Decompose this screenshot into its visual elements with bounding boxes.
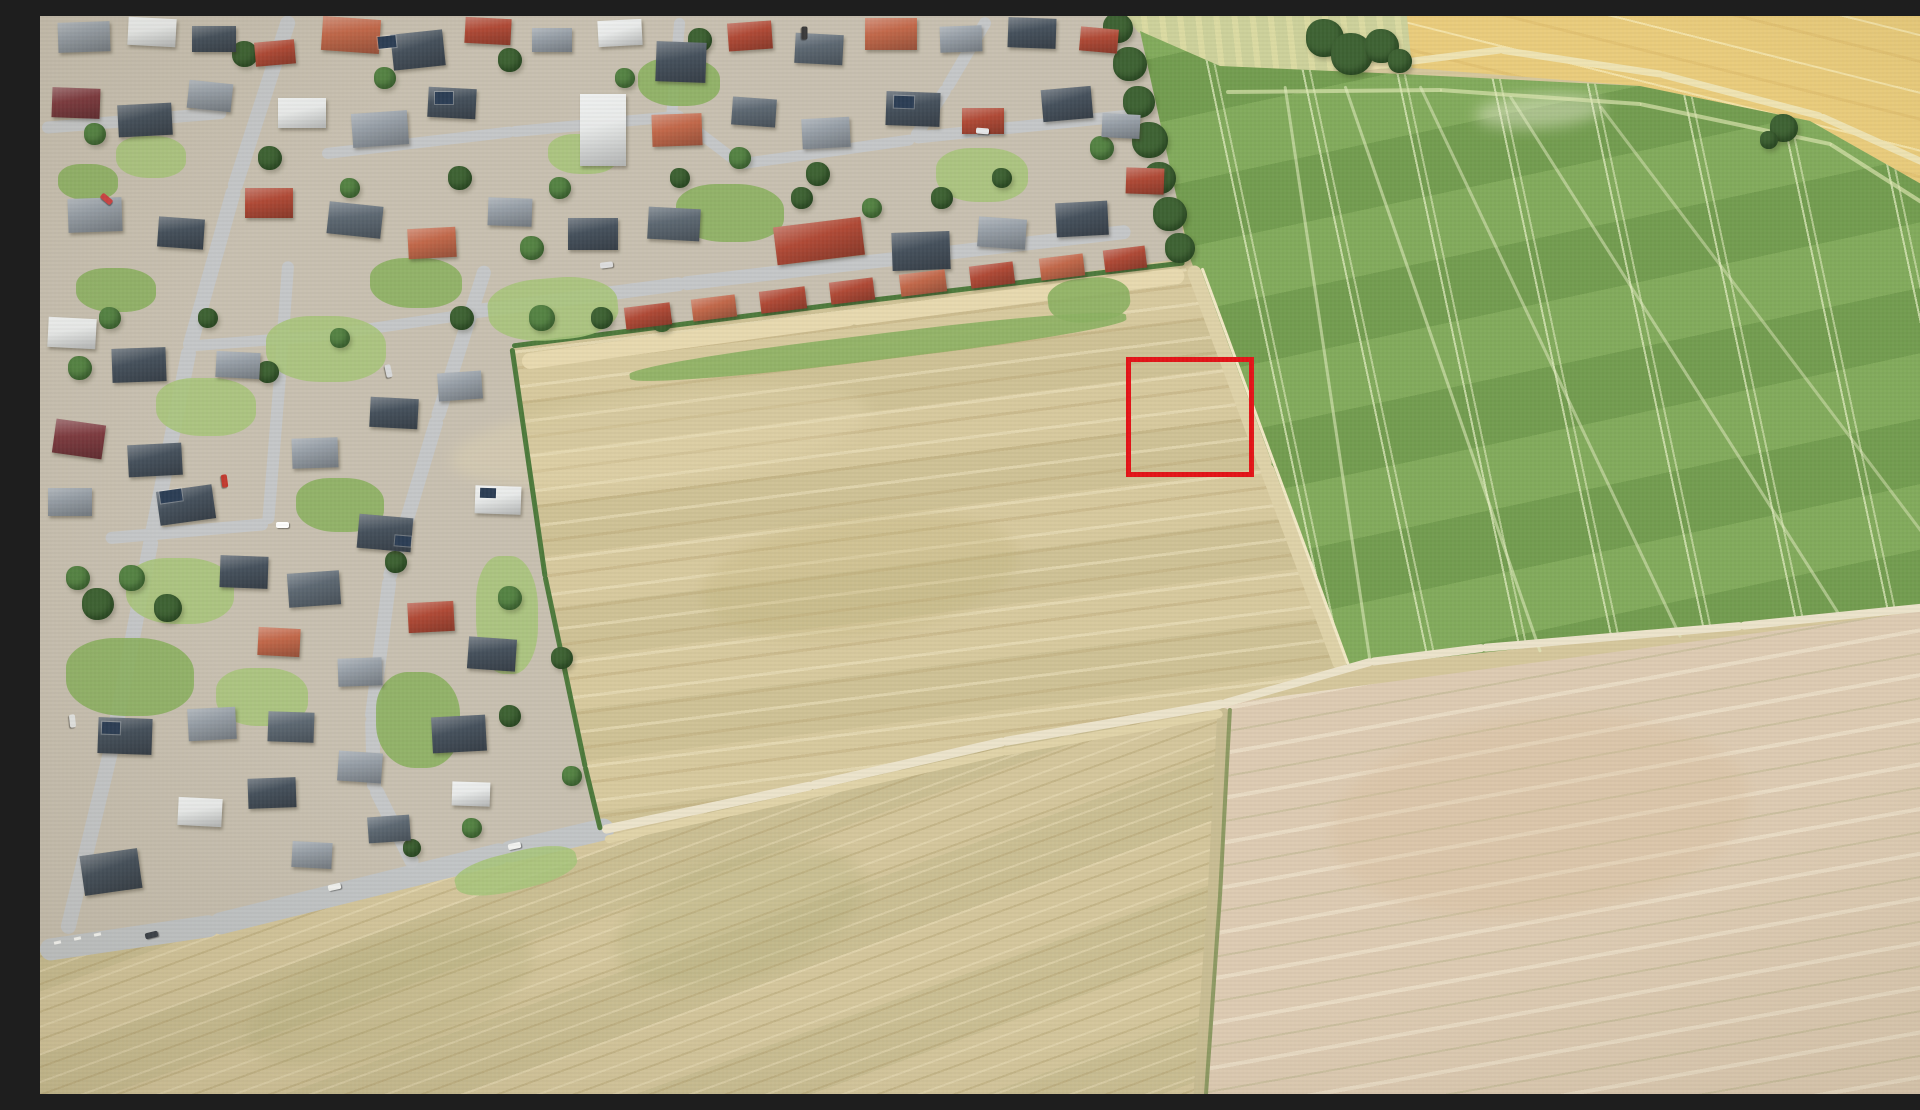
house-roof — [940, 25, 983, 52]
tree — [330, 328, 350, 348]
field-edge-tree — [1165, 233, 1195, 263]
solar-panel — [395, 535, 412, 546]
car — [802, 27, 808, 40]
house-roof — [278, 98, 326, 128]
tree — [66, 566, 90, 590]
house-roof — [157, 216, 205, 249]
house-roof — [254, 39, 296, 66]
tree — [551, 647, 573, 669]
house-roof — [48, 488, 92, 516]
tree — [498, 48, 522, 72]
field-tree-cluster — [1388, 49, 1412, 73]
house-roof — [367, 815, 411, 844]
house-roof — [245, 188, 293, 218]
tree — [450, 306, 474, 330]
house-roof — [1007, 17, 1056, 49]
field-edge-tree — [1113, 47, 1147, 81]
tree — [462, 818, 482, 838]
tree — [670, 168, 690, 188]
house-roof — [1126, 167, 1165, 194]
house-roof — [127, 17, 176, 47]
car — [976, 128, 989, 135]
house-roof — [287, 570, 341, 608]
house-roof — [351, 110, 409, 148]
tree — [499, 705, 521, 727]
field-edge-tree — [1153, 197, 1187, 231]
solar-panel — [480, 488, 496, 499]
house-roof — [891, 231, 950, 271]
house-roof — [407, 601, 455, 633]
house-roof — [326, 201, 383, 238]
house-roof — [467, 636, 517, 671]
tree — [84, 123, 106, 145]
house-roof — [580, 94, 626, 166]
tree — [374, 67, 396, 89]
tree — [99, 307, 121, 329]
tree — [549, 177, 571, 199]
house-roof — [407, 227, 457, 259]
tree — [257, 361, 279, 383]
house-roof — [219, 555, 268, 589]
house-roof — [431, 715, 487, 754]
house-roof — [801, 117, 851, 149]
house-roof — [437, 370, 483, 401]
house-roof — [731, 96, 777, 127]
garden-lawn — [76, 268, 156, 312]
house-roof — [291, 841, 332, 869]
solar-panel — [377, 35, 396, 49]
tree — [862, 198, 882, 218]
tree — [498, 586, 522, 610]
field-edge-tree — [1123, 86, 1155, 118]
house-roof — [257, 627, 300, 657]
garden-lawn — [266, 316, 386, 382]
tree — [385, 551, 407, 573]
house-roof — [488, 197, 533, 227]
tree — [791, 187, 813, 209]
house-roof — [247, 777, 296, 809]
house-roof — [647, 207, 701, 242]
garden-lawn — [116, 136, 186, 178]
house-roof — [1041, 86, 1094, 122]
tree — [154, 594, 182, 622]
house-roof — [1079, 26, 1119, 53]
solar-panel — [894, 96, 914, 109]
tree — [198, 308, 218, 328]
house-roof — [452, 781, 491, 806]
tree — [562, 766, 582, 786]
house-roof — [127, 443, 183, 478]
house-roof — [215, 351, 260, 379]
house-roof — [532, 28, 572, 52]
house-roof — [52, 419, 106, 460]
solar-panel — [102, 722, 120, 735]
tree — [520, 236, 544, 260]
garden-lawn — [370, 258, 462, 308]
house-roof — [47, 317, 97, 349]
house-roof — [390, 29, 445, 70]
tree — [68, 356, 92, 380]
house-roof — [117, 103, 173, 138]
tree — [1090, 136, 1114, 160]
lone-bush — [1760, 131, 1778, 149]
house-roof — [651, 113, 702, 147]
house-roof — [192, 26, 236, 52]
tree — [82, 588, 114, 620]
solar-panel — [435, 92, 453, 104]
tree — [806, 162, 830, 186]
house-roof — [865, 18, 917, 50]
house-roof — [177, 797, 222, 827]
house-roof — [187, 707, 237, 741]
house-roof — [727, 20, 773, 51]
plot-marker[interactable] — [1126, 357, 1254, 477]
house-roof — [655, 41, 706, 83]
house-roof — [357, 514, 414, 553]
garden-lawn — [66, 638, 194, 716]
tree — [340, 178, 360, 198]
house-roof — [267, 711, 314, 743]
tree — [529, 305, 555, 331]
house-roof — [187, 80, 234, 112]
house-roof — [337, 751, 383, 784]
tree — [119, 565, 145, 591]
house-roof — [79, 848, 142, 896]
tree — [931, 187, 953, 209]
tree — [729, 147, 751, 169]
tree — [992, 168, 1012, 188]
garden-lawn — [58, 164, 118, 200]
house-roof — [1101, 113, 1140, 139]
house-roof — [464, 17, 511, 45]
house-roof — [57, 21, 110, 53]
tree — [448, 166, 472, 190]
house-roof — [51, 87, 100, 119]
house-roof — [338, 657, 383, 687]
tree — [403, 839, 421, 857]
house-roof — [67, 197, 122, 233]
house-roof — [1055, 201, 1109, 238]
car — [69, 714, 76, 728]
tree — [258, 146, 282, 170]
garden-lawn — [156, 378, 256, 436]
house-roof — [977, 216, 1027, 249]
aerial-photo — [40, 16, 1920, 1094]
house-roof — [111, 347, 166, 383]
house-roof — [369, 397, 419, 429]
house-roof — [321, 16, 381, 54]
tree — [615, 68, 635, 88]
house-roof — [568, 218, 618, 250]
car — [276, 522, 289, 528]
house-roof — [291, 437, 338, 469]
house-roof — [597, 19, 642, 47]
tree — [591, 307, 613, 329]
